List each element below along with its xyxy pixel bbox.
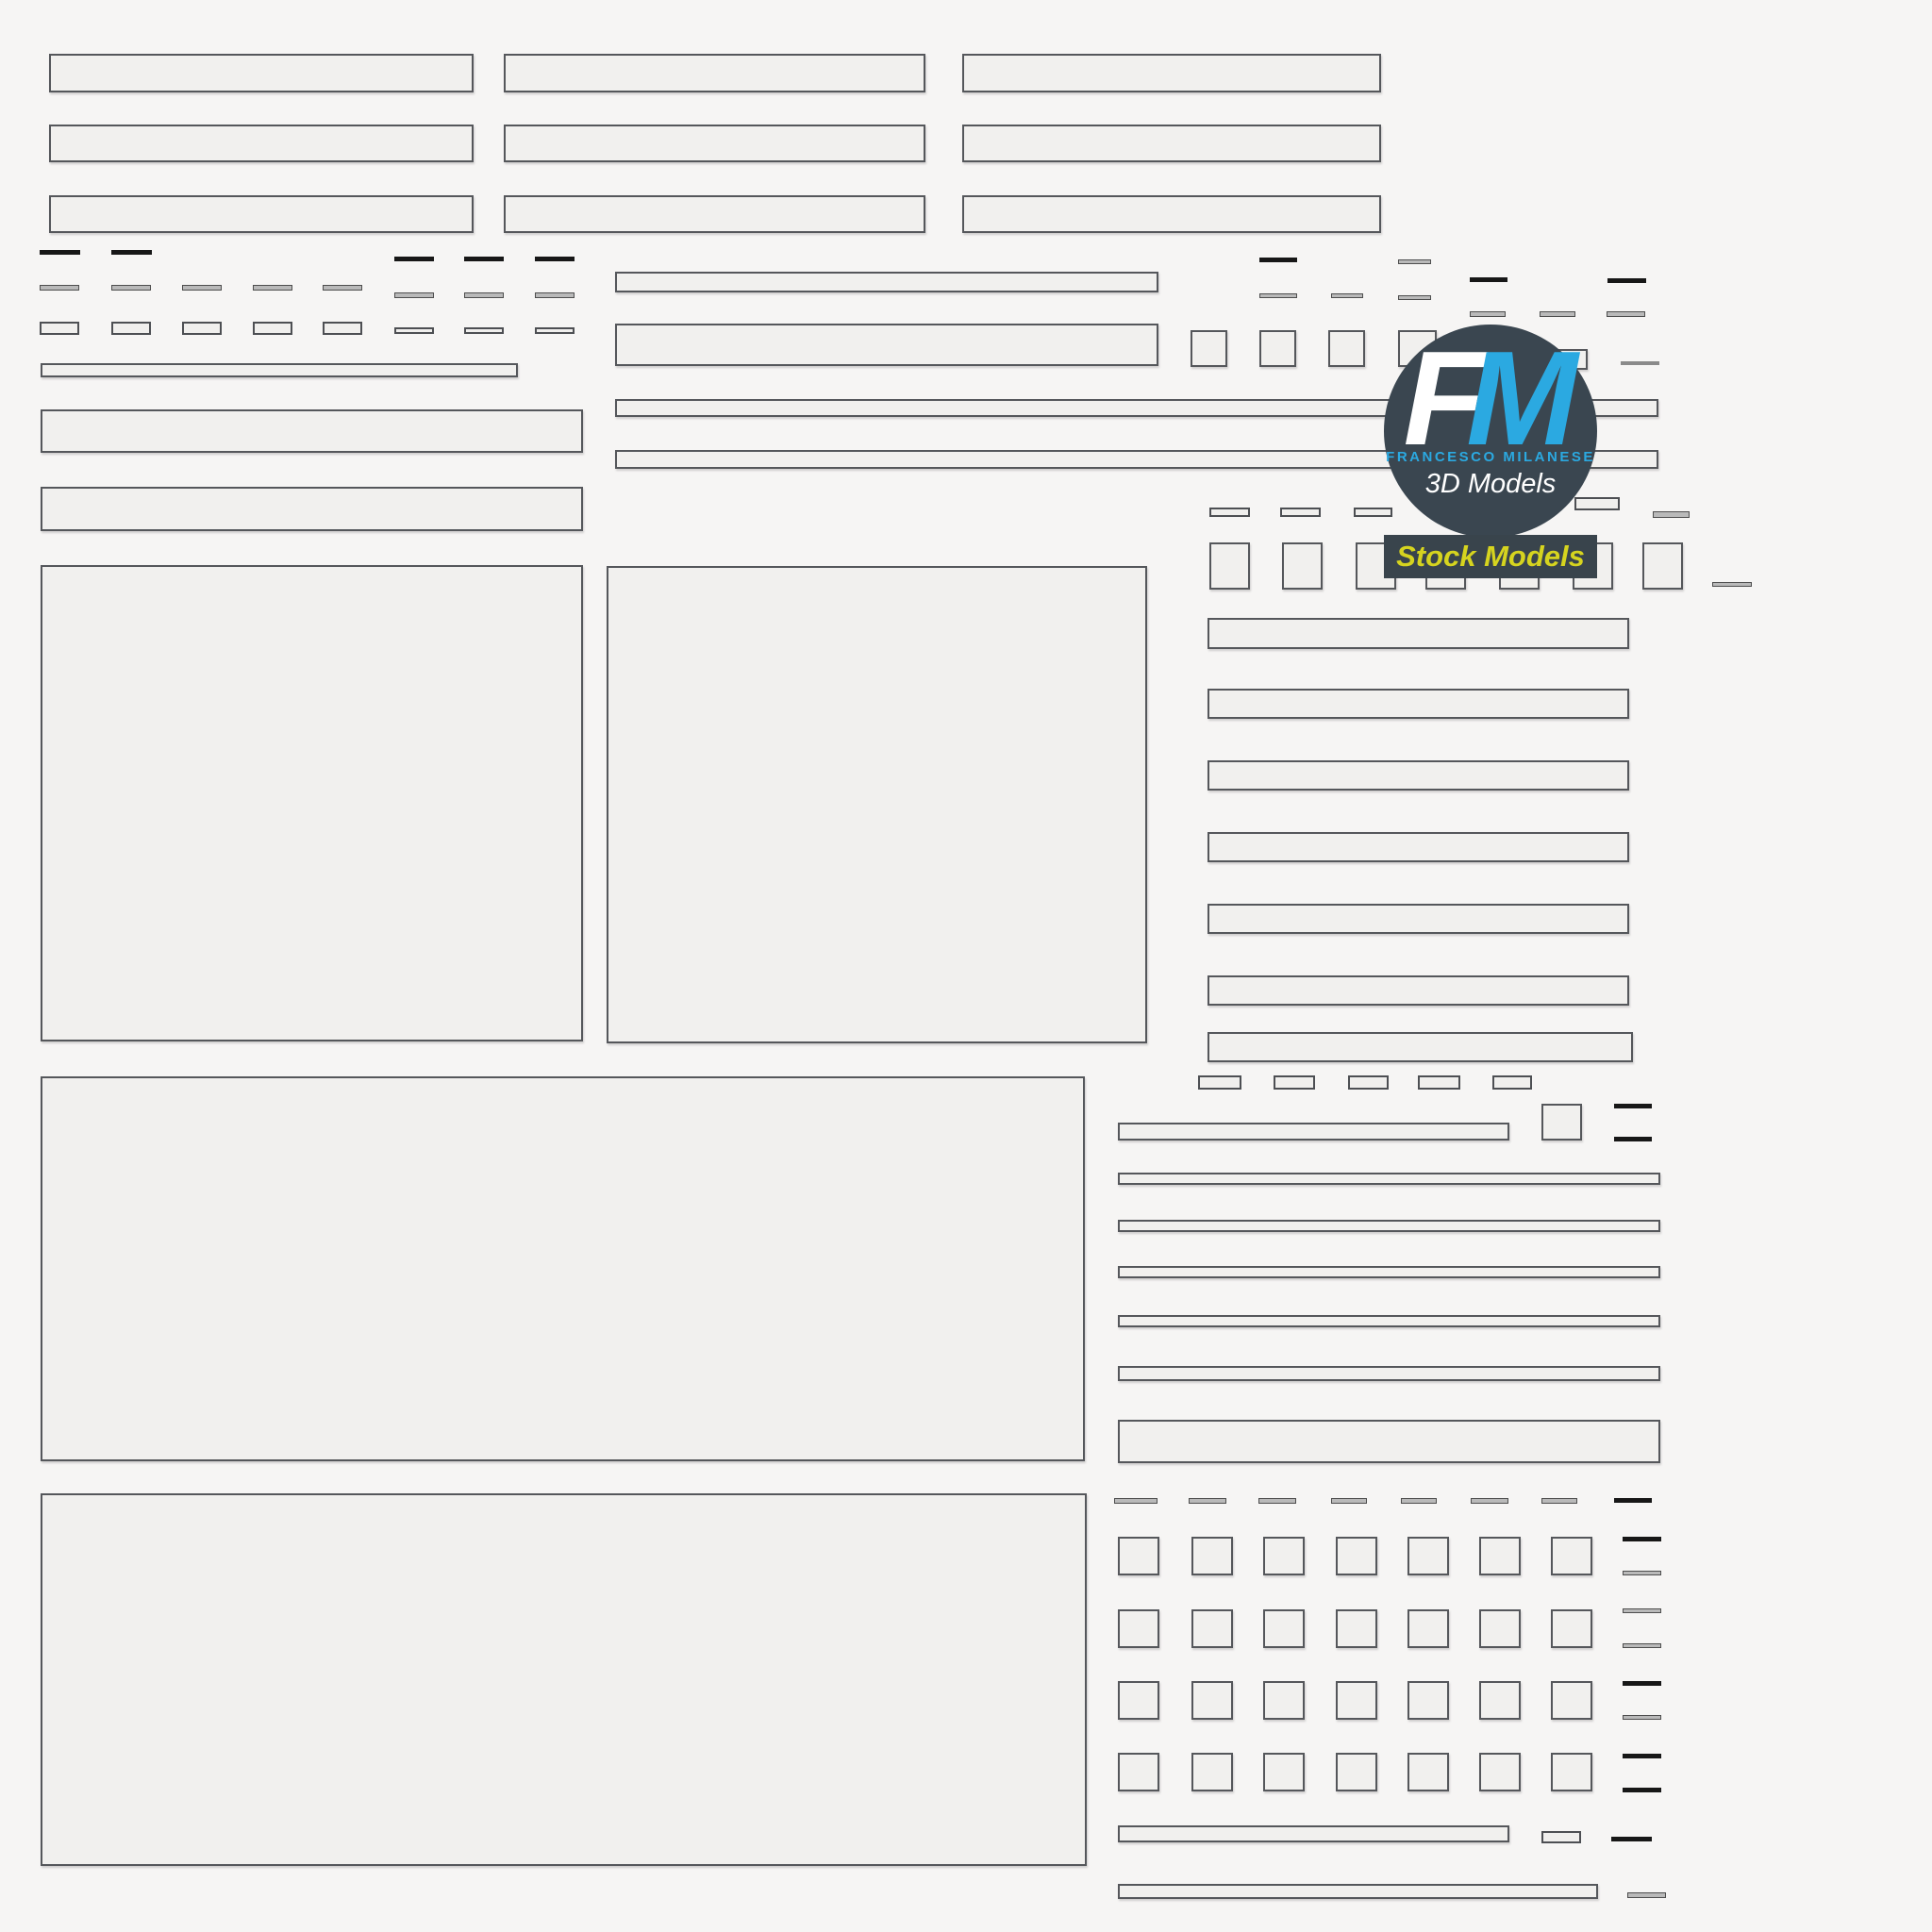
fm-logo-circle: FM FRANCESCO MILANESE 3D Models xyxy=(1384,325,1597,538)
small-field-box xyxy=(40,322,79,335)
small-field-box xyxy=(394,327,434,334)
label-dash-gray xyxy=(323,285,362,291)
middle-bar xyxy=(615,272,1158,292)
badge-row-square xyxy=(1209,542,1250,590)
grid-square xyxy=(1551,1681,1592,1720)
bottom-field-bar xyxy=(1118,1825,1509,1842)
label-dash-dark xyxy=(1614,1104,1652,1108)
label-dash-gray xyxy=(1541,1498,1577,1504)
label-dash-dark xyxy=(40,250,80,255)
label-dash-gray xyxy=(111,285,151,291)
grid-square xyxy=(1407,1609,1449,1648)
grid-square xyxy=(1191,1609,1233,1648)
wide-panel xyxy=(41,1076,1085,1461)
grid-square xyxy=(1191,1681,1233,1720)
label-dash-gray xyxy=(1331,293,1363,298)
grid-square xyxy=(1263,1753,1305,1791)
small-field-box xyxy=(1280,508,1321,517)
middle-square xyxy=(1259,330,1296,367)
grid-square xyxy=(1191,1537,1233,1575)
big-panel xyxy=(41,565,583,1041)
top-field-box xyxy=(504,125,925,162)
grid-square xyxy=(1118,1537,1159,1575)
right-mid-field xyxy=(1118,1123,1509,1141)
label-dash-dark xyxy=(1623,1788,1661,1792)
label-dash-gray xyxy=(1398,259,1431,264)
label-dash-gray xyxy=(182,285,222,291)
small-field-box xyxy=(1274,1075,1315,1090)
grid-square xyxy=(1336,1537,1377,1575)
label-dash-gray xyxy=(1258,1498,1296,1504)
right-mid-field xyxy=(1118,1173,1660,1185)
label-dash-gray xyxy=(464,292,504,298)
label-dash-gray xyxy=(1540,311,1575,317)
small-field-box xyxy=(1541,1831,1581,1843)
small-field-box xyxy=(1492,1075,1532,1090)
label-dash-gray xyxy=(1623,1643,1661,1648)
label-dash-gray xyxy=(1470,311,1506,317)
small-field-box xyxy=(253,322,292,335)
left-field-box xyxy=(41,487,583,531)
right-mid-field xyxy=(1118,1366,1660,1381)
right-mid-field xyxy=(1118,1315,1660,1327)
small-field-box xyxy=(464,327,504,334)
grid-square xyxy=(1479,1537,1521,1575)
fm-logo-monogram: FM xyxy=(1403,332,1577,466)
label-dash-dark xyxy=(1614,1498,1652,1503)
small-field-box xyxy=(535,327,575,334)
grid-square xyxy=(1479,1609,1521,1648)
right-stack-bar xyxy=(1207,832,1629,862)
label-dash-gray xyxy=(1398,295,1431,300)
stock-models-badge: Stock Models xyxy=(1384,535,1597,578)
left-field-box xyxy=(41,363,518,377)
label-dash-gray xyxy=(1627,1892,1666,1898)
left-field-box xyxy=(41,409,583,453)
stock-models-badge-label: Stock Models xyxy=(1396,540,1585,574)
right-mid-field xyxy=(1118,1220,1660,1232)
small-field-box xyxy=(111,322,151,335)
label-dash-gray xyxy=(1623,1608,1661,1613)
top-field-box xyxy=(49,195,474,233)
label-dash-gray xyxy=(394,292,434,298)
top-field-box xyxy=(49,54,474,92)
grid-square xyxy=(1407,1753,1449,1791)
right-mid-field xyxy=(1118,1420,1660,1463)
grid-square xyxy=(1479,1681,1521,1720)
grid-square xyxy=(1118,1681,1159,1720)
small-field-box xyxy=(182,322,222,335)
right-stack-bar xyxy=(1207,618,1629,649)
label-dash-gray xyxy=(1623,1715,1661,1720)
top-field-box xyxy=(962,125,1381,162)
label-dash-gray xyxy=(40,285,79,291)
small-field-box xyxy=(1354,508,1392,517)
thin-line xyxy=(1621,361,1659,365)
middle-square xyxy=(1328,330,1365,367)
label-dash-gray xyxy=(1189,1498,1226,1504)
grid-square xyxy=(1118,1609,1159,1648)
label-dash-gray xyxy=(1607,311,1645,317)
grid-square xyxy=(1551,1753,1592,1791)
grid-square xyxy=(1263,1681,1305,1720)
fm-logo-name: FRANCESCO MILANESE xyxy=(1386,449,1595,465)
right-stack-bar xyxy=(1207,689,1629,719)
grid-square xyxy=(1407,1537,1449,1575)
grid-square xyxy=(1479,1753,1521,1791)
right-stack-bar xyxy=(1207,975,1629,1006)
wireframe-sheet: FM FRANCESCO MILANESE 3D Models Stock Mo… xyxy=(0,0,1932,1932)
right-stack-bar xyxy=(1207,1032,1633,1062)
label-dash-dark xyxy=(1614,1137,1652,1141)
label-dash-gray xyxy=(1259,293,1297,298)
grid-square xyxy=(1336,1753,1377,1791)
top-field-box xyxy=(962,54,1381,92)
right-mid-field xyxy=(1541,1104,1582,1141)
right-mid-field xyxy=(1118,1266,1660,1278)
label-dash-dark xyxy=(1623,1537,1661,1541)
label-dash-dark xyxy=(1259,258,1297,262)
label-dash-gray xyxy=(1471,1498,1508,1504)
grid-square xyxy=(1336,1609,1377,1648)
middle-bar xyxy=(615,324,1158,366)
right-stack-bar xyxy=(1207,904,1629,934)
right-stack-bar xyxy=(1207,760,1629,791)
label-dash-gray xyxy=(1401,1498,1437,1504)
small-field-box xyxy=(323,322,362,335)
label-dash-gray xyxy=(1653,511,1690,518)
small-field-box xyxy=(1574,497,1620,510)
badge-row-square xyxy=(1282,542,1323,590)
label-dash-dark xyxy=(1607,278,1646,283)
label-dash-dark xyxy=(394,257,434,261)
top-field-box xyxy=(504,54,925,92)
big-panel xyxy=(607,566,1147,1043)
top-field-box xyxy=(49,125,474,162)
label-dash-dark xyxy=(1470,277,1507,282)
grid-square xyxy=(1263,1537,1305,1575)
grid-square xyxy=(1263,1609,1305,1648)
small-field-box xyxy=(1418,1075,1460,1090)
label-dash-gray xyxy=(253,285,292,291)
label-dash-gray xyxy=(535,292,575,298)
grid-square xyxy=(1118,1753,1159,1791)
label-dash-dark xyxy=(1623,1754,1661,1758)
wide-panel xyxy=(41,1493,1087,1866)
grid-square xyxy=(1551,1609,1592,1648)
small-field-box xyxy=(1348,1075,1389,1090)
grid-square xyxy=(1551,1537,1592,1575)
small-field-box xyxy=(1209,508,1250,517)
small-field-box xyxy=(1198,1075,1241,1090)
label-dash-dark xyxy=(1623,1681,1661,1686)
grid-square xyxy=(1191,1753,1233,1791)
bottom-field-bar xyxy=(1118,1884,1598,1899)
label-dash-gray xyxy=(1114,1498,1158,1504)
grid-square xyxy=(1336,1681,1377,1720)
top-field-box xyxy=(962,195,1381,233)
fm-logo-tagline: 3D Models xyxy=(1425,469,1557,500)
label-dash-gray xyxy=(1712,582,1752,587)
label-dash-dark xyxy=(464,257,504,261)
label-dash-dark xyxy=(111,250,152,255)
grid-square xyxy=(1407,1681,1449,1720)
badge-row-square xyxy=(1642,542,1683,590)
label-dash-gray xyxy=(1623,1571,1661,1575)
middle-square xyxy=(1191,330,1227,367)
top-field-box xyxy=(504,195,925,233)
label-dash-gray xyxy=(1331,1498,1367,1504)
label-dash-dark xyxy=(1611,1837,1652,1841)
label-dash-dark xyxy=(535,257,575,261)
